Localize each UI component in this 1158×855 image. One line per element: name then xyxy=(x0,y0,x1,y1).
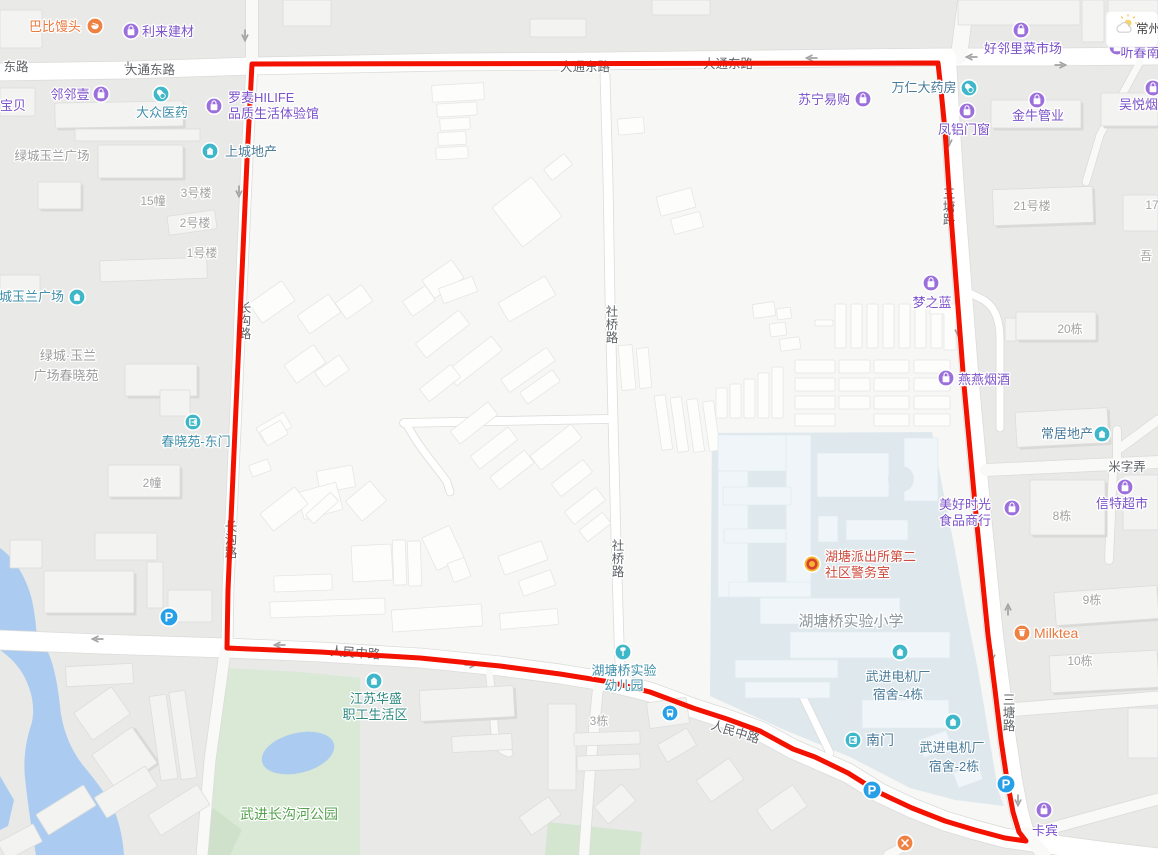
svg-text:广场春晓苑: 广场春晓苑 xyxy=(33,368,98,383)
svg-text:2幢: 2幢 xyxy=(143,475,162,490)
svg-text:春晓苑-东门: 春晓苑-东门 xyxy=(161,434,230,449)
svg-text:21号楼: 21号楼 xyxy=(1013,198,1050,213)
svg-text:塘: 塘 xyxy=(1003,705,1016,720)
svg-text:宝贝: 宝贝 xyxy=(0,98,26,113)
svg-text:1号楼: 1号楼 xyxy=(187,245,218,260)
svg-text:常居地产: 常居地产 xyxy=(1041,426,1093,441)
svg-text:绿城·玉兰: 绿城·玉兰 xyxy=(40,348,96,363)
svg-text:湖塘派出所第二: 湖塘派出所第二 xyxy=(825,549,916,564)
svg-text:8栋: 8栋 xyxy=(1053,508,1072,523)
svg-text:卡宾: 卡宾 xyxy=(1032,823,1058,838)
svg-text:P: P xyxy=(165,610,174,625)
svg-text:罗麦HILIFE: 罗麦HILIFE xyxy=(228,90,295,105)
svg-text:武进电机厂: 武进电机厂 xyxy=(865,669,930,684)
svg-text:桥: 桥 xyxy=(612,552,625,566)
svg-text:20栋: 20栋 xyxy=(1057,321,1082,336)
svg-text:Milktea: Milktea xyxy=(1034,625,1079,641)
svg-text:吾: 吾 xyxy=(1140,249,1152,263)
svg-text:苏宁易购: 苏宁易购 xyxy=(798,92,850,107)
svg-text:10栋: 10栋 xyxy=(1067,653,1092,668)
svg-text:职工生活区: 职工生活区 xyxy=(342,707,407,722)
svg-text:宿舍-4栋: 宿舍-4栋 xyxy=(873,687,924,702)
svg-text:3号楼: 3号楼 xyxy=(181,185,212,200)
svg-text:东路: 东路 xyxy=(3,59,29,74)
svg-text:凤铝门窗: 凤铝门窗 xyxy=(938,122,990,137)
svg-text:桥: 桥 xyxy=(606,318,619,332)
svg-text:食品商行: 食品商行 xyxy=(939,513,991,528)
svg-text:大通东路: 大通东路 xyxy=(125,62,176,77)
svg-text:路: 路 xyxy=(606,330,619,345)
svg-text:武进电机厂: 武进电机厂 xyxy=(919,740,984,755)
svg-text:上城地产: 上城地产 xyxy=(225,144,277,159)
svg-text:巴比馒头: 巴比馒头 xyxy=(29,19,81,34)
svg-text:品质生活体验馆: 品质生活体验馆 xyxy=(228,106,319,121)
svg-text:武进长沟河公园: 武进长沟河公园 xyxy=(240,806,338,822)
svg-text:15幢: 15幢 xyxy=(140,193,165,208)
svg-text:燕燕烟酒: 燕燕烟酒 xyxy=(958,372,1010,387)
svg-text:2号楼: 2号楼 xyxy=(180,215,211,230)
svg-text:社: 社 xyxy=(606,304,619,319)
svg-text:邻邻壹: 邻邻壹 xyxy=(50,87,89,102)
svg-text:万仁大药房: 万仁大药房 xyxy=(891,80,956,95)
svg-text:梦之蓝: 梦之蓝 xyxy=(912,295,951,310)
svg-text:江苏华盛: 江苏华盛 xyxy=(350,691,402,706)
svg-text:绿城玉兰广场: 绿城玉兰广场 xyxy=(14,148,89,163)
svg-text:利来建材: 利来建材 xyxy=(142,24,194,39)
svg-text:绿城玉兰广场: 绿城玉兰广场 xyxy=(0,289,64,304)
svg-text:社: 社 xyxy=(612,538,625,553)
svg-text:P: P xyxy=(1002,777,1011,792)
svg-text:17: 17 xyxy=(1145,198,1158,212)
svg-text:路: 路 xyxy=(612,564,625,579)
svg-text:P: P xyxy=(868,783,877,798)
svg-text:3栋: 3栋 xyxy=(590,713,609,728)
svg-text:湖塘桥实验: 湖塘桥实验 xyxy=(591,663,656,678)
svg-text:幼儿园: 幼儿园 xyxy=(604,678,643,693)
svg-text:米字弄: 米字弄 xyxy=(1108,459,1146,474)
svg-text:常州: 常州 xyxy=(1136,22,1158,36)
svg-text:路: 路 xyxy=(1003,718,1016,733)
svg-text:好邻里菜市场: 好邻里菜市场 xyxy=(984,41,1062,56)
svg-text:湖塘桥实验小学: 湖塘桥实验小学 xyxy=(798,613,903,630)
svg-text:金牛管业: 金牛管业 xyxy=(1012,108,1064,123)
svg-text:信特超市: 信特超市 xyxy=(1096,496,1148,511)
svg-text:社区警务室: 社区警务室 xyxy=(825,565,890,580)
svg-text:大众医药: 大众医药 xyxy=(136,105,188,120)
svg-text:宿舍-2栋: 宿舍-2栋 xyxy=(929,759,980,774)
svg-text:吴悦烟酒: 吴悦烟酒 xyxy=(1119,97,1158,112)
svg-text:南门: 南门 xyxy=(866,732,894,748)
svg-text:美好时光: 美好时光 xyxy=(939,497,991,512)
svg-text:9栋: 9栋 xyxy=(1083,592,1102,607)
svg-text:三: 三 xyxy=(1003,693,1016,707)
